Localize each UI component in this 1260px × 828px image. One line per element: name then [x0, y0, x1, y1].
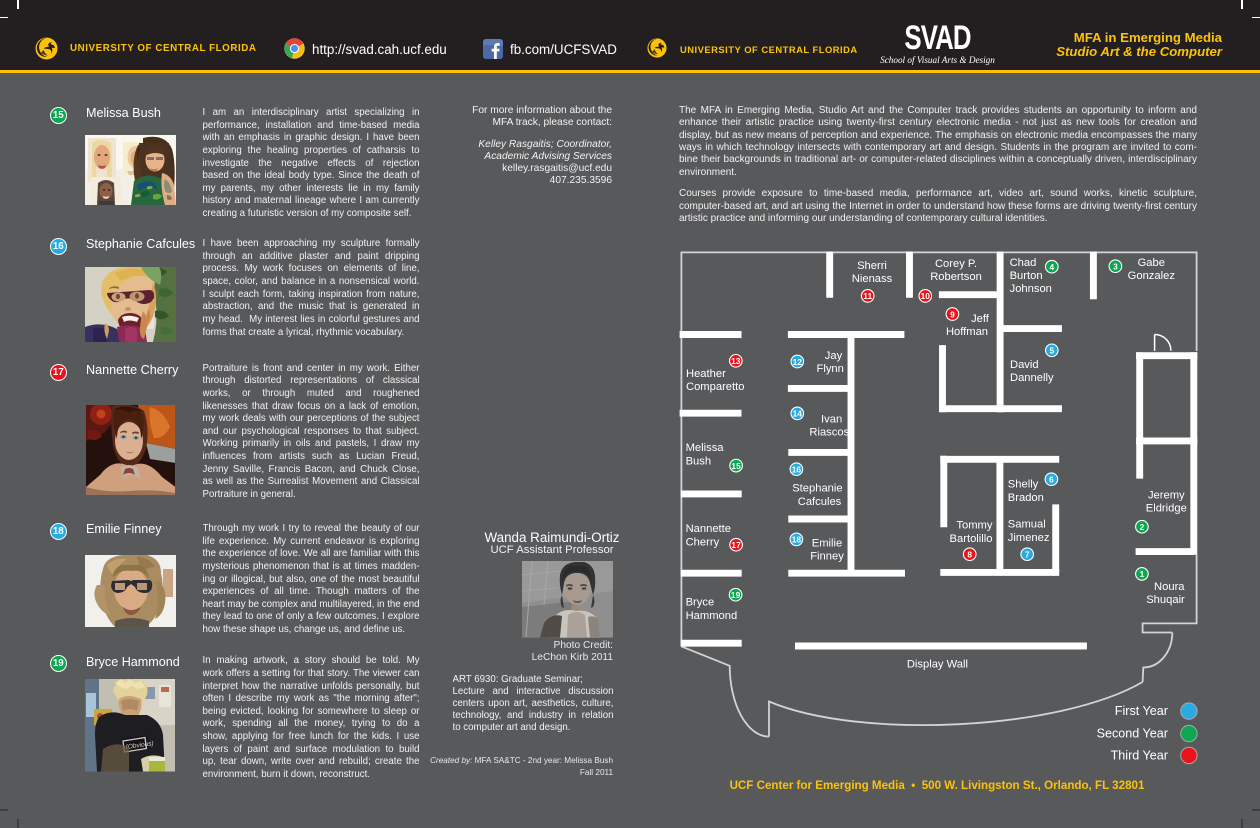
svg-text:Bush: Bush — [686, 456, 712, 468]
svg-text:17: 17 — [731, 540, 741, 550]
svg-text:12: 12 — [793, 357, 803, 367]
svg-text:19: 19 — [731, 590, 741, 600]
svg-text:Burton: Burton — [1010, 270, 1043, 282]
svg-text:First Year: First Year — [1115, 704, 1168, 718]
svg-text:Hammond: Hammond — [686, 610, 738, 622]
svg-text:Noura: Noura — [1154, 581, 1185, 593]
svg-text:Melissa: Melissa — [686, 442, 725, 454]
svg-text:15: 15 — [731, 461, 741, 471]
svg-text:Gonzalez: Gonzalez — [1128, 270, 1176, 282]
svg-text:3: 3 — [1113, 262, 1118, 272]
svg-text:11: 11 — [863, 291, 872, 301]
svg-text:2: 2 — [1140, 522, 1145, 532]
svg-text:Emilie: Emilie — [812, 538, 842, 550]
svg-text:Flynn: Flynn — [817, 363, 844, 375]
svg-text:Nannette: Nannette — [686, 523, 731, 535]
svg-text:Corey P.: Corey P. — [935, 258, 977, 270]
svg-text:Jeremy: Jeremy — [1148, 490, 1185, 502]
svg-text:Second Year: Second Year — [1097, 727, 1168, 741]
svg-text:Heather: Heather — [686, 368, 726, 380]
svg-text:18: 18 — [792, 535, 802, 545]
svg-text:13: 13 — [731, 356, 741, 366]
svg-text:Jeff: Jeff — [971, 313, 990, 325]
svg-text:Nienass: Nienass — [852, 273, 893, 285]
svg-text:7: 7 — [1025, 550, 1030, 560]
svg-text:Cafcules: Cafcules — [798, 496, 842, 508]
svg-text:Cherry: Cherry — [686, 537, 720, 549]
svg-text:1: 1 — [1140, 569, 1145, 579]
svg-text:Stephanie: Stephanie — [792, 483, 842, 495]
svg-text:16: 16 — [792, 465, 802, 475]
svg-text:4: 4 — [1049, 262, 1054, 272]
svg-text:Johnson: Johnson — [1010, 283, 1052, 295]
svg-text:Bryce: Bryce — [686, 597, 715, 609]
svg-text:5: 5 — [1049, 346, 1054, 356]
svg-text:Finney: Finney — [810, 551, 844, 563]
svg-text:14: 14 — [793, 409, 803, 419]
svg-text:Samual: Samual — [1008, 519, 1046, 531]
svg-text:Shelly: Shelly — [1008, 479, 1039, 491]
svg-text:Jimenez: Jimenez — [1008, 532, 1050, 544]
svg-text:Robertson: Robertson — [930, 271, 982, 283]
svg-text:Third Year: Third Year — [1111, 749, 1168, 763]
svg-text:Tommy: Tommy — [956, 520, 992, 532]
svg-text:Dannelly: Dannelly — [1010, 372, 1054, 384]
svg-text:David: David — [1010, 359, 1039, 371]
svg-text:Eldridge: Eldridge — [1146, 503, 1187, 515]
svg-text:Bradon: Bradon — [1008, 492, 1044, 504]
svg-text:6: 6 — [1049, 475, 1054, 485]
svg-text:Bartolillo: Bartolillo — [950, 533, 993, 545]
svg-text:Gabe: Gabe — [1138, 257, 1165, 269]
svg-text:Shuqair: Shuqair — [1146, 594, 1185, 606]
svg-text:Chad: Chad — [1010, 257, 1037, 269]
svg-text:Sherri: Sherri — [857, 260, 887, 272]
svg-text:9: 9 — [950, 309, 955, 319]
svg-text:8: 8 — [967, 550, 972, 560]
svg-text:Jay: Jay — [825, 350, 843, 362]
svg-text:10: 10 — [921, 291, 931, 301]
svg-text:Hoffman: Hoffman — [946, 326, 988, 338]
svg-text:Display Wall: Display Wall — [907, 659, 968, 671]
svg-text:Riascos: Riascos — [809, 427, 849, 439]
svg-text:Ivan: Ivan — [821, 414, 842, 426]
svg-text:Comparetto: Comparetto — [686, 381, 744, 393]
